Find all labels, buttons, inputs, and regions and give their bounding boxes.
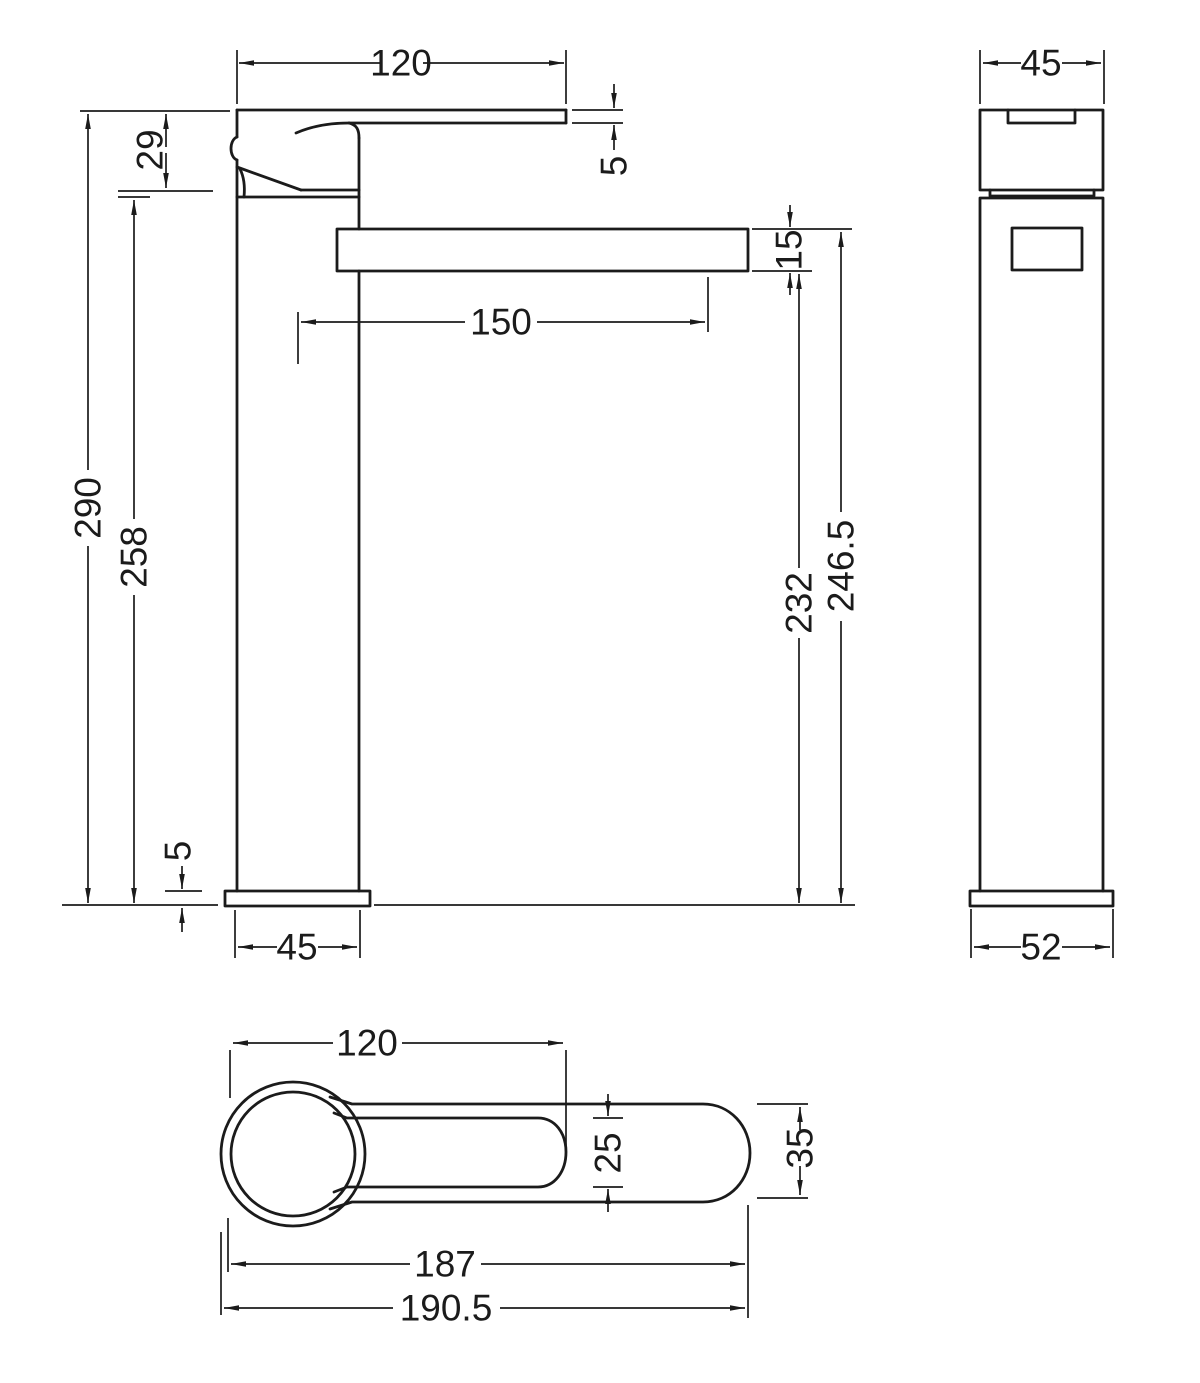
dim-front-spout-reach: 150: [470, 302, 532, 343]
dim-plan-body-length: 187: [414, 1244, 476, 1285]
plan-lever-outline: [334, 1113, 566, 1192]
side-lever-notch: [1008, 110, 1075, 123]
front-base-plate: [225, 891, 370, 906]
faucet-technical-drawing: 120 5 29 290 258 150 15 232 246.5 5 45 4…: [0, 0, 1200, 1383]
plan-view: [221, 1082, 750, 1226]
drawing-sheet: 120 5 29 290 258 150 15 232 246.5 5 45 4…: [0, 0, 1200, 1383]
side-spout-window: [1012, 228, 1082, 270]
dim-plan-lever-width: 25: [588, 1132, 629, 1173]
side-view: [970, 110, 1113, 906]
dim-front-handle-height: 29: [130, 129, 171, 170]
dim-front-lever-thickness: 5: [594, 156, 635, 177]
dim-front-body-height: 258: [114, 526, 155, 588]
dim-front-overall-height: 290: [68, 477, 109, 539]
front-view: [225, 110, 748, 906]
front-handle-skirt-curve: [240, 169, 244, 197]
extension-lines: [62, 50, 1113, 1318]
dim-front-base-width: 45: [276, 927, 317, 968]
front-pivot-bulge: [231, 137, 237, 160]
dim-plan-overall-length: 190.5: [400, 1288, 493, 1329]
dim-front-lever-length: 120: [370, 43, 432, 84]
plan-body-circle: [231, 1092, 355, 1216]
front-handle-corner: [349, 123, 359, 138]
front-lever-grip-curve: [296, 123, 349, 133]
front-handle-skirt-diagonal: [237, 167, 301, 190]
side-body: [980, 198, 1103, 891]
dim-plan-spout-width: 35: [780, 1127, 821, 1168]
front-spout: [337, 229, 748, 271]
plan-spout-outline: [330, 1097, 750, 1209]
dimension-labels: 120 5 29 290 258 150 15 232 246.5 5 45 4…: [68, 43, 1062, 1329]
dim-front-spout-thickness: 15: [769, 229, 810, 270]
dim-front-spout-bottom-height: 232: [779, 572, 820, 634]
dim-front-base-thickness: 5: [158, 841, 199, 862]
dim-side-width: 45: [1020, 43, 1061, 84]
dim-front-spout-top-height: 246.5: [821, 520, 862, 613]
dim-side-base-width: 52: [1020, 927, 1061, 968]
dim-plan-lever-length: 120: [336, 1023, 398, 1064]
side-base-plate: [970, 891, 1113, 906]
